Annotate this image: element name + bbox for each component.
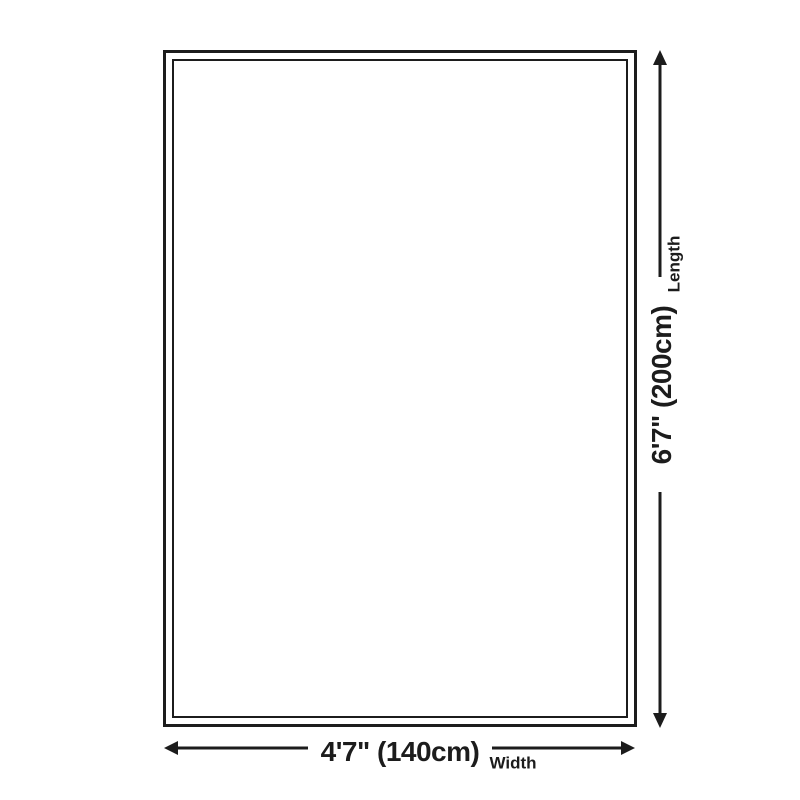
length-value: 6'7" (200cm) — [648, 306, 676, 465]
dimension-diagram: 6'7" (200cm) Length 4'7" (140cm) Width — [0, 0, 800, 800]
dimension-arrows — [0, 0, 800, 800]
width-value: 4'7" (140cm) — [321, 738, 480, 766]
length-label: Length — [666, 236, 683, 293]
width-label: Width — [489, 755, 536, 772]
